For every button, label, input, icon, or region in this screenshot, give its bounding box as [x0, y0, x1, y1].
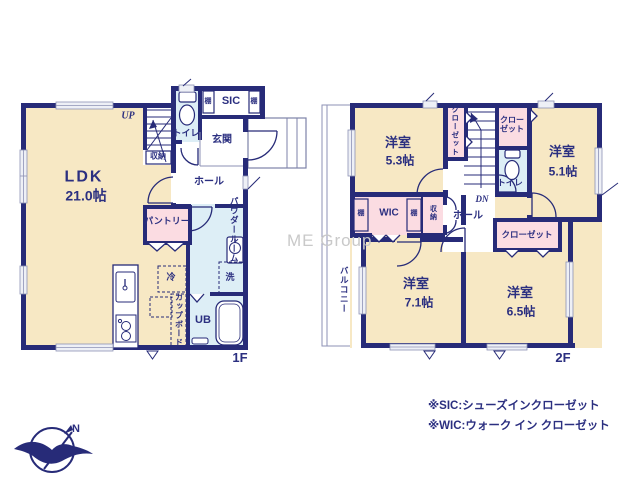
room-65-size: 6.5帖: [507, 306, 536, 319]
kitchen-counter: [113, 265, 138, 348]
shelf-right-label-2f: 棚: [411, 210, 418, 218]
hall-label-1f: ホール: [194, 178, 224, 189]
stairs-down-label: DN: [476, 195, 489, 205]
room-71-size: 7.1帖: [405, 297, 434, 310]
powder-room-label: パウダールーム: [230, 197, 239, 264]
note-sic: ※SIC:シューズインクローゼット: [428, 396, 610, 416]
toilet-fixture-2f: [505, 150, 520, 180]
stairs-up-label: UP: [121, 112, 134, 123]
cupboard-label: カップボード: [175, 293, 183, 347]
entrance-porch: [248, 118, 306, 168]
compass-north-icon: [14, 425, 93, 472]
shelf-right-label-1f: 棚: [251, 98, 258, 106]
balcony-label: バルコニー: [340, 266, 349, 314]
room-53-name: 洋室: [385, 136, 411, 150]
closet-right-label-2f: クローゼット: [501, 230, 552, 239]
shelf-left-label-1f: 棚: [205, 98, 212, 106]
storage-label-2f: 収納: [430, 205, 437, 221]
storage-label-1f: 収納: [150, 153, 166, 162]
entrance-label: 玄関: [212, 136, 232, 147]
floor1-label: 1F: [232, 351, 247, 365]
room-51-name: 洋室: [549, 145, 575, 159]
room-51-size: 5.1帖: [549, 166, 578, 179]
hall-label-2f: ホール: [453, 212, 483, 223]
vent-mark-2f-right: [494, 351, 505, 359]
vent-mark-1f: [147, 351, 158, 359]
legend-notes: ※SIC:シューズインクローゼット ※WIC:ウォーク イン クローゼット: [428, 396, 610, 436]
washer-label: 洗: [225, 273, 234, 283]
floor2-label: 2F: [555, 351, 570, 365]
wic-label: WIC: [379, 209, 398, 220]
sic-label: SIC: [222, 96, 240, 108]
unit-bath-label: UB: [195, 315, 211, 327]
fridge-label: 冷: [166, 273, 175, 283]
pantry-label: パントリー: [144, 217, 189, 227]
room-ldk-size: 21.0帖: [65, 188, 106, 203]
floor-plan-canvas: LDK 21.0帖 UP 収納 トイレ 棚 SIC 棚 玄関 ホール パントリー…: [0, 0, 640, 480]
vent-mark-2f-left: [424, 351, 435, 359]
room-53-size: 5.3帖: [386, 155, 415, 168]
toilet-label-1f: トイレ: [172, 129, 199, 139]
closet-left-label-2f: クローゼット: [451, 106, 459, 157]
room-65-name: 洋室: [507, 286, 533, 300]
watermark: ME Group: [287, 231, 372, 251]
room-71-name: 洋室: [403, 277, 429, 291]
closet-center-label-2f: クローゼット: [498, 116, 526, 133]
toilet-label-2f: トイレ: [497, 178, 523, 187]
note-wic: ※WIC:ウォーク イン クローゼット: [428, 416, 610, 436]
shelf-left-label-2f: 棚: [358, 210, 365, 218]
room-ldk-name: LDK: [65, 168, 104, 185]
compass-north-label: N: [72, 424, 80, 436]
floor2-plan: [322, 93, 618, 359]
